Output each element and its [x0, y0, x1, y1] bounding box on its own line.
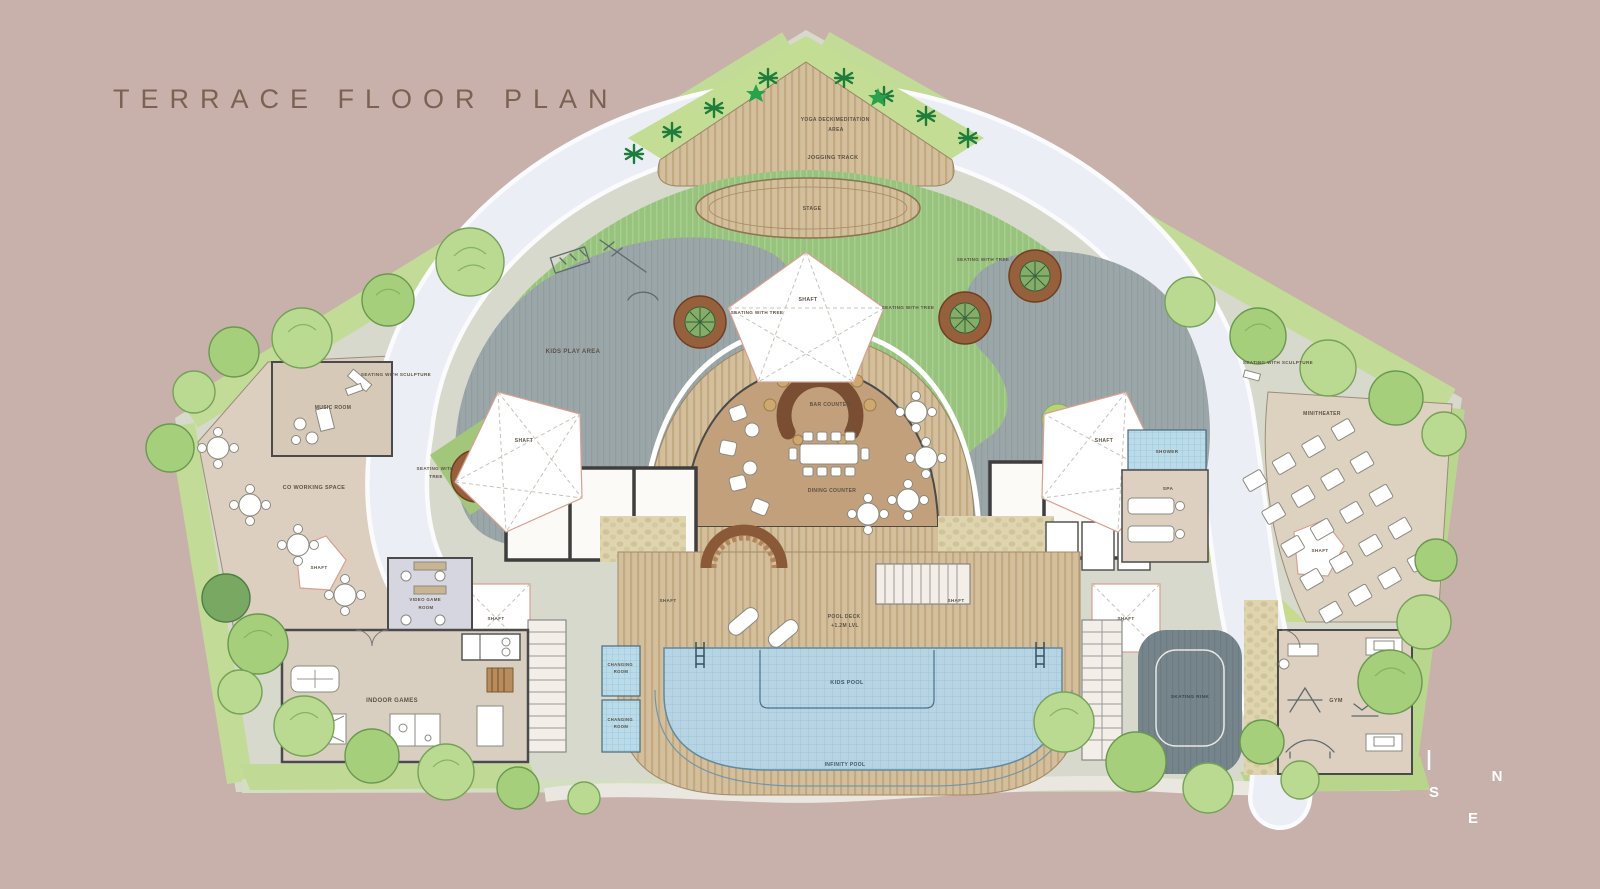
label-shower: SHOWER [1156, 449, 1179, 454]
pool-area [618, 530, 1080, 795]
label-minitheater: MINITHEATER [1303, 411, 1341, 417]
label-shaft: SHAFT [1117, 616, 1134, 621]
label-seating-with-tree: SEATING WITH TREE [731, 310, 784, 315]
label-seating-with-tree: SEATING WITH TREE [882, 305, 935, 310]
label-kids-pool: KIDS POOL [830, 680, 864, 686]
compass-east-label: E [1468, 810, 1478, 827]
floor-plan-drawing: YOGA DECK/MEDITATION AREA JOGGING TRACK … [0, 0, 1600, 889]
label-spa: SPA [1163, 486, 1174, 492]
compass: N S E [1429, 750, 1502, 827]
label-seating-with-sculpture: SEATING WITH SCULPTURE [1243, 360, 1313, 365]
label-seating-with-tree: SEATING WITH TREE [957, 257, 1010, 262]
label-kids-play-area: KIDS PLAY AREA [546, 349, 601, 355]
label-shaft: SHAFT [310, 565, 327, 570]
label-shaft: SHAFT [1311, 548, 1328, 553]
compass-north-label: N [1492, 768, 1503, 785]
video-game-room [388, 558, 472, 632]
label-gym: GYM [1329, 698, 1343, 704]
label-indoor-games: INDOOR GAMES [366, 698, 418, 704]
label-shaft: SHAFT [659, 598, 676, 603]
label-shaft: SHAFT [487, 616, 504, 621]
label-seating-with-sculpture: SEATING WITH SCULPTURE [361, 372, 431, 377]
terrace-floor-plan-page: TERRACE FLOOR PLAN [0, 0, 1600, 889]
label-stage: STAGE [803, 206, 822, 212]
label-jogging-track: JOGGING TRACK [808, 155, 859, 161]
label-co-working-space: CO WORKING SPACE [283, 485, 346, 491]
label-shaft: SHAFT [515, 438, 533, 444]
label-bar-counter: BAR COUNTER [810, 402, 851, 408]
yoga-deck-area [625, 36, 984, 186]
label-infinity-pool: INFINITY POOL [825, 762, 866, 768]
label-dining-counter: DINING COUNTER [808, 488, 857, 494]
label-shaft: SHAFT [1095, 438, 1113, 444]
spa-room [1122, 470, 1208, 562]
label-shaft: SHAFT [947, 598, 964, 603]
label-shaft: SHAFT [798, 297, 818, 303]
compass-south-label: S [1429, 784, 1439, 801]
label-skating-rink: SKATING RINK [1171, 694, 1210, 700]
label-music-room: MUSIC ROOM [315, 405, 352, 411]
